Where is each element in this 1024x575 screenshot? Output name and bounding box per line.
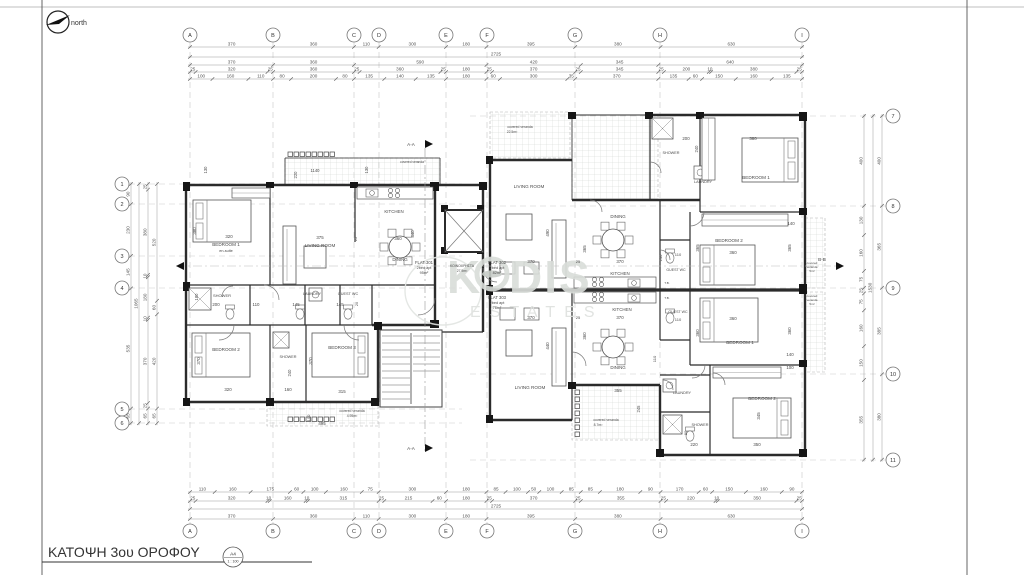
dim-value: 160	[858, 249, 863, 257]
grid-row-6-label: 6	[120, 421, 123, 427]
toilet-tank	[686, 427, 695, 431]
dim-value: 85	[493, 486, 499, 491]
pier	[799, 112, 807, 121]
pillow	[196, 223, 203, 239]
dim-value: 200	[310, 73, 318, 78]
dim-value: 160	[227, 73, 235, 78]
sofa	[552, 328, 566, 386]
toilet-tank	[226, 305, 235, 309]
dim-value: 25	[268, 66, 274, 71]
grid-row-9-label: 9	[891, 286, 894, 292]
plan-label: 360	[787, 327, 792, 335]
dim-value: 400	[858, 157, 863, 165]
grid-col-H-top-label: H	[658, 33, 662, 39]
grid-col-E-top-label: E	[444, 33, 448, 39]
plan-label: 350	[753, 442, 761, 447]
dim-value: 2725	[491, 503, 502, 508]
plan-label: 100	[786, 365, 794, 370]
plan-label: 380	[192, 227, 197, 235]
plan-label: 365	[582, 245, 587, 253]
dim-value: 180	[462, 495, 470, 500]
dim-value: 420	[151, 357, 156, 365]
plan-label: LIVING ROOM	[305, 243, 336, 248]
rail-post	[575, 432, 580, 437]
pier	[266, 182, 274, 188]
plan-label: SHOWER	[691, 423, 708, 427]
dim-value: 10	[714, 495, 720, 500]
dim-value: 355	[617, 495, 625, 500]
door-swing	[264, 285, 279, 300]
plan-label: BEDROOM 2	[748, 396, 776, 401]
pillow	[781, 401, 788, 416]
plan-label: 80	[683, 430, 688, 435]
dim-value: 60	[693, 73, 699, 78]
dim-value: 85	[588, 486, 594, 491]
dim-chain-left-inner: 2538010180103702565	[142, 182, 149, 425]
pier	[371, 398, 379, 406]
toilet-bowl	[226, 309, 234, 319]
dim-value: 200	[683, 66, 691, 71]
dim-value: 355	[858, 415, 863, 423]
plan-label: B-B	[818, 257, 826, 262]
plan-label: LAUNDRY	[303, 292, 322, 296]
wardrobe	[702, 118, 715, 180]
grid-col-G-top-label: G	[573, 33, 577, 39]
plan-label: 370	[616, 315, 624, 320]
plan-label: 110	[652, 355, 657, 362]
pier	[799, 208, 807, 215]
grid-row-2-label: 2	[120, 202, 123, 208]
grid-col-A-top-label: A	[188, 33, 192, 39]
dim-value: 150	[715, 73, 723, 78]
plan-label: 370	[308, 357, 313, 365]
dim-value: 180	[462, 66, 470, 71]
plan-label: DINING	[610, 365, 626, 370]
dim-value: 110	[257, 73, 265, 78]
dim-value: 160	[340, 486, 348, 491]
plan-label: 360	[695, 329, 700, 337]
plan-label: 200	[212, 302, 220, 307]
dim-value: 150	[858, 359, 863, 367]
dim-value: 345	[616, 59, 624, 64]
grid-row-1-label: 1	[120, 182, 123, 188]
dim-value: 175	[266, 486, 274, 491]
pillow	[358, 357, 365, 374]
plan-label: 140	[786, 352, 794, 357]
plan-label: SHOWER	[662, 151, 679, 155]
plan-label: 360	[394, 236, 402, 241]
rail-post	[575, 404, 580, 409]
plan-label: 145	[292, 302, 300, 307]
rail-post	[575, 425, 580, 430]
plan-label: KITCHEN	[384, 209, 403, 214]
dim-chain-left-total: 1065	[133, 182, 140, 425]
bed	[312, 333, 368, 377]
pillow	[703, 248, 710, 263]
grid-row-4-label: 4	[120, 286, 123, 292]
dim-value: 60	[703, 486, 709, 491]
dim-value: 10	[707, 66, 713, 71]
structural-grid: AABBCCDDEEFFGGHHII1234567891011	[115, 28, 900, 538]
rail-post	[306, 152, 311, 157]
dim-value: 395	[527, 41, 535, 46]
dim-value: 180	[462, 513, 470, 518]
plan-label: 370	[196, 357, 201, 365]
plan-label: 320	[225, 234, 233, 239]
plan-label: covered veranda	[400, 160, 424, 164]
dim-value: 10	[142, 316, 147, 322]
dim-value: 60	[294, 486, 300, 491]
plan-label: 365	[695, 244, 700, 252]
pillow	[196, 203, 203, 219]
plan-label: 5m²	[809, 269, 814, 273]
plan-label: 100	[306, 414, 311, 421]
dim-value: 370	[228, 41, 236, 46]
dim-value: 2725	[491, 51, 502, 56]
dim-value: 140	[396, 73, 404, 78]
dining-table	[602, 336, 624, 358]
dim-chain-bottom-row-4: 370360110300180395380630	[188, 513, 804, 520]
plan-label: 140	[787, 221, 795, 226]
plan-label: 2bed apt	[490, 266, 506, 270]
pier	[799, 284, 807, 294]
plan-label: DINING	[392, 257, 408, 262]
dim-chain-bottom-row-2: 2532010160103152521560180253702535525220…	[188, 495, 804, 502]
plan-label: 8.7m²	[594, 423, 604, 427]
pillow	[703, 301, 710, 318]
plan-label: A-A	[407, 446, 416, 451]
dim-value: 135	[365, 73, 373, 78]
dim-value: 60	[151, 305, 156, 311]
veranda-area	[572, 115, 658, 200]
plan-label: BEDROOM 3	[328, 345, 356, 350]
plan-label: T.B.	[664, 296, 669, 300]
floor-plan-drawing: north AABBCCDDEEFFGGHHII1234567891011 K …	[0, 0, 1024, 575]
dim-value: 25	[142, 403, 147, 409]
dim-value: 1530	[867, 282, 872, 293]
grid-col-C-bottom-label: C	[352, 529, 356, 535]
title-block: ΚΑΤΟΨΗ 3ου ΟΡΟΦΟΥ A4 1 : 100	[42, 544, 312, 567]
dim-value: 180	[462, 41, 470, 46]
grid-row-5-label: 5	[120, 407, 123, 413]
dining-chair	[601, 357, 609, 365]
plan-label: 345	[756, 412, 761, 420]
plan-label: 240	[287, 369, 292, 377]
pier	[479, 182, 487, 190]
pillow	[703, 267, 710, 282]
pillow	[703, 322, 710, 339]
coffee-table	[304, 246, 326, 268]
dim-value: 100	[197, 73, 205, 78]
dining-chair	[601, 250, 609, 258]
plan-label: LAUNDRY	[673, 391, 692, 395]
plan-label: 315	[338, 389, 346, 394]
dim-value: 370	[613, 73, 621, 78]
section-a-top-marker	[425, 140, 433, 148]
plan-label: FLAT 301	[415, 260, 434, 265]
rail-post	[312, 152, 317, 157]
dim-value: 80	[280, 73, 286, 78]
veranda-area	[805, 292, 825, 372]
veranda-area	[805, 218, 825, 288]
dim-value: 640	[726, 59, 734, 64]
rail-post	[324, 152, 329, 157]
dim-value: 90	[125, 191, 130, 197]
plan-label: 495	[318, 421, 326, 426]
dining-chair	[617, 250, 625, 258]
dim-value: 370	[530, 495, 538, 500]
dim-value: 25	[797, 495, 803, 500]
door-swing	[692, 365, 705, 378]
dim-value: 300	[530, 73, 538, 78]
plan-label: LIVING ROOM	[514, 184, 545, 189]
dim-value: 100	[513, 486, 521, 491]
plan-label: 490	[545, 229, 550, 237]
sheet-scale: 1 : 100	[228, 560, 239, 564]
dim-value: 75	[368, 486, 374, 491]
dim-value: 590	[416, 59, 424, 64]
dim-value: 630	[727, 41, 735, 46]
plan-label: 370	[527, 315, 535, 320]
grid-row-8-label: 8	[891, 204, 894, 210]
plan-label: 240	[658, 254, 663, 261]
plan-label: BEDROOM 1	[742, 175, 770, 180]
plan-label: KITCHEN	[610, 271, 629, 276]
veranda-area	[572, 385, 660, 440]
plan-label: 5m²	[809, 302, 814, 306]
pillow	[788, 162, 795, 179]
rail-post	[294, 152, 299, 157]
plan-label: 20	[355, 302, 359, 306]
plan-label: ΚΟΙΝΟΧΡΗΣΤΑ	[450, 264, 475, 268]
rail-post	[294, 417, 299, 422]
dining-chair	[593, 236, 601, 244]
pillow	[788, 141, 795, 158]
floor-plan-sheet: north AABBCCDDEEFFGGHHII1234567891011 K …	[0, 0, 1024, 575]
bed	[193, 200, 251, 242]
plan-label: BEDROOM 1	[726, 340, 754, 345]
plan-label: 1140	[310, 168, 320, 173]
dim-value: 535	[125, 344, 130, 352]
plan-label: LIVING ROOM	[515, 385, 546, 390]
watermark-tagline: ESTATES	[470, 304, 604, 321]
dim-value: 370	[142, 357, 147, 365]
sheet-title: ΚΑΤΟΨΗ 3ου ΟΡΟΦΟΥ	[48, 544, 200, 560]
rail-post	[575, 418, 580, 423]
rail-post	[288, 152, 293, 157]
grid-row-10-label: 10	[890, 372, 896, 378]
pier	[486, 156, 493, 164]
dim-value: 385	[876, 327, 881, 335]
plan-label: KITCHEN	[612, 307, 631, 312]
dim-value: 85	[569, 486, 575, 491]
dim-value: 360	[310, 66, 318, 71]
dim-value: 35	[569, 73, 575, 78]
plan-label: BEDROOM 2	[715, 238, 743, 243]
shower-tray	[273, 332, 289, 348]
dim-chain-top-row-5: 1001601108020080135140135180603003537013…	[188, 73, 804, 80]
dim-value: 320	[228, 66, 236, 71]
dim-value: 60	[437, 495, 443, 500]
dim-chain-top-total: 2725	[188, 51, 804, 58]
dim-value: 395	[527, 513, 535, 518]
pier	[799, 449, 807, 457]
plan-label: 25	[576, 315, 581, 320]
plan-label: covered veranda	[507, 125, 532, 129]
plan-label: FLAT 302	[488, 260, 507, 265]
pillow	[781, 420, 788, 435]
plan-label: 200	[682, 136, 690, 141]
plan-label: 370	[527, 259, 535, 264]
sofa	[283, 226, 296, 284]
plan-label: DINING	[610, 214, 626, 219]
dining-chair	[412, 243, 420, 251]
shower-tray	[652, 118, 673, 139]
dim-value: 10	[266, 495, 272, 500]
dim-value: 215	[405, 495, 413, 500]
plan-label: 110	[675, 252, 682, 257]
dim-value: 170	[676, 486, 684, 491]
pier	[183, 398, 190, 406]
section-a-bottom-marker	[425, 444, 433, 452]
grid-col-G-bottom-label: G	[573, 529, 577, 535]
dim-value: 65	[151, 413, 156, 419]
plan-label: 2bed apt	[490, 301, 506, 305]
shower-tray	[663, 415, 682, 434]
dim-value: 100	[547, 486, 555, 491]
dim-value: 25	[190, 66, 196, 71]
plan-label: 220	[293, 171, 298, 179]
dim-value: 520	[151, 238, 156, 246]
grid-col-B-bottom-label: B	[271, 529, 275, 535]
grid-col-D-top-label: D	[377, 33, 381, 39]
grid-col-H-bottom-label: H	[658, 529, 662, 535]
dim-value: 180	[462, 486, 470, 491]
dim-chain-bottom-total: 2725	[188, 503, 804, 510]
door-swing	[418, 298, 435, 315]
dim-value: 180	[462, 73, 470, 78]
rail-post	[575, 390, 580, 395]
pier	[486, 415, 493, 423]
plan-label: SHOWER	[213, 293, 231, 298]
dim-value: 25	[487, 66, 493, 71]
coffee-table	[506, 330, 532, 356]
dim-value: 25	[858, 288, 863, 294]
grid-col-E-bottom-label: E	[444, 529, 448, 535]
dim-value: 360	[310, 513, 318, 518]
plan-label: 160	[284, 387, 292, 392]
plan-label: BEDROOM 2	[212, 347, 240, 352]
section-b-right-marker	[836, 262, 844, 270]
pier	[568, 112, 576, 119]
dim-value: 90	[789, 486, 795, 491]
dim-value: 100	[311, 486, 319, 491]
plan-label: 76m²	[493, 306, 502, 310]
dim-value: 75	[858, 299, 863, 305]
grid-row-3-label: 3	[120, 254, 123, 260]
pier	[656, 449, 664, 457]
dim-value: 25	[487, 495, 493, 500]
dim-value: 320	[228, 495, 236, 500]
dim-value: 145	[125, 268, 130, 276]
sofa-body	[552, 328, 566, 386]
dim-value: 300	[409, 486, 417, 491]
plan-label: 375	[316, 235, 324, 240]
north-label: north	[71, 20, 87, 27]
plan-label: 320	[224, 387, 232, 392]
pier	[374, 322, 382, 330]
rail-post	[575, 397, 580, 402]
plan-label: 145	[336, 302, 344, 307]
dim-value: 360	[396, 66, 404, 71]
north-arrow: north	[46, 11, 87, 33]
rail-post	[288, 417, 293, 422]
furniture	[189, 118, 798, 441]
plan-label: 440	[410, 230, 415, 238]
dim-value: 380	[614, 41, 622, 46]
dining-chair	[617, 222, 625, 230]
coffee-table	[506, 214, 532, 240]
grid-col-D-bottom-label: D	[377, 529, 381, 535]
plan-label: GUEST WC	[666, 268, 686, 272]
dim-value: 300	[409, 41, 417, 46]
grid-row-7-label: 7	[891, 114, 894, 120]
dining-chair	[601, 329, 609, 337]
plan-label: 365	[787, 244, 792, 252]
dining-chair	[601, 222, 609, 230]
dim-value: 360	[310, 59, 318, 64]
dim-value: 150	[725, 486, 733, 491]
dim-value: 380	[614, 513, 622, 518]
dim-value: 25	[142, 184, 147, 190]
toilet-bowl	[296, 309, 304, 319]
rail-post	[575, 411, 580, 416]
dining-chair	[625, 236, 633, 244]
plan-label: 245	[636, 405, 641, 413]
dim-value: 65	[142, 413, 147, 419]
plan-label: 82m²	[493, 271, 502, 275]
dim-value: 315	[339, 495, 347, 500]
dim-value: 350	[753, 495, 761, 500]
dim-value: 135	[783, 73, 791, 78]
plan-label: 220	[690, 442, 698, 447]
bed	[700, 245, 755, 285]
dining-table	[602, 229, 624, 251]
grid-row-11-label: 11	[890, 458, 896, 464]
rail-post	[318, 152, 323, 157]
dim-value: 25	[661, 495, 667, 500]
wardrobe	[713, 367, 781, 378]
plan-label: 240	[694, 145, 699, 153]
dim-value: 300	[409, 513, 417, 518]
dining-chair	[380, 243, 388, 251]
toilet-bowl	[344, 309, 352, 319]
plan-label: 370	[616, 259, 624, 264]
dim-value: 135	[670, 73, 678, 78]
pillow	[195, 336, 202, 353]
dim-value: 25	[354, 66, 360, 71]
pier	[568, 382, 576, 389]
dining-set	[593, 329, 633, 365]
dim-value: 370	[228, 513, 236, 518]
toilet	[666, 249, 675, 263]
plan-label: en-suite	[219, 249, 233, 253]
plan-label: FLAT 303	[488, 295, 507, 300]
toilet-tank	[344, 305, 353, 309]
plan-label: 25	[353, 236, 358, 241]
toilet	[296, 305, 305, 319]
plan-label: 380	[749, 136, 757, 141]
